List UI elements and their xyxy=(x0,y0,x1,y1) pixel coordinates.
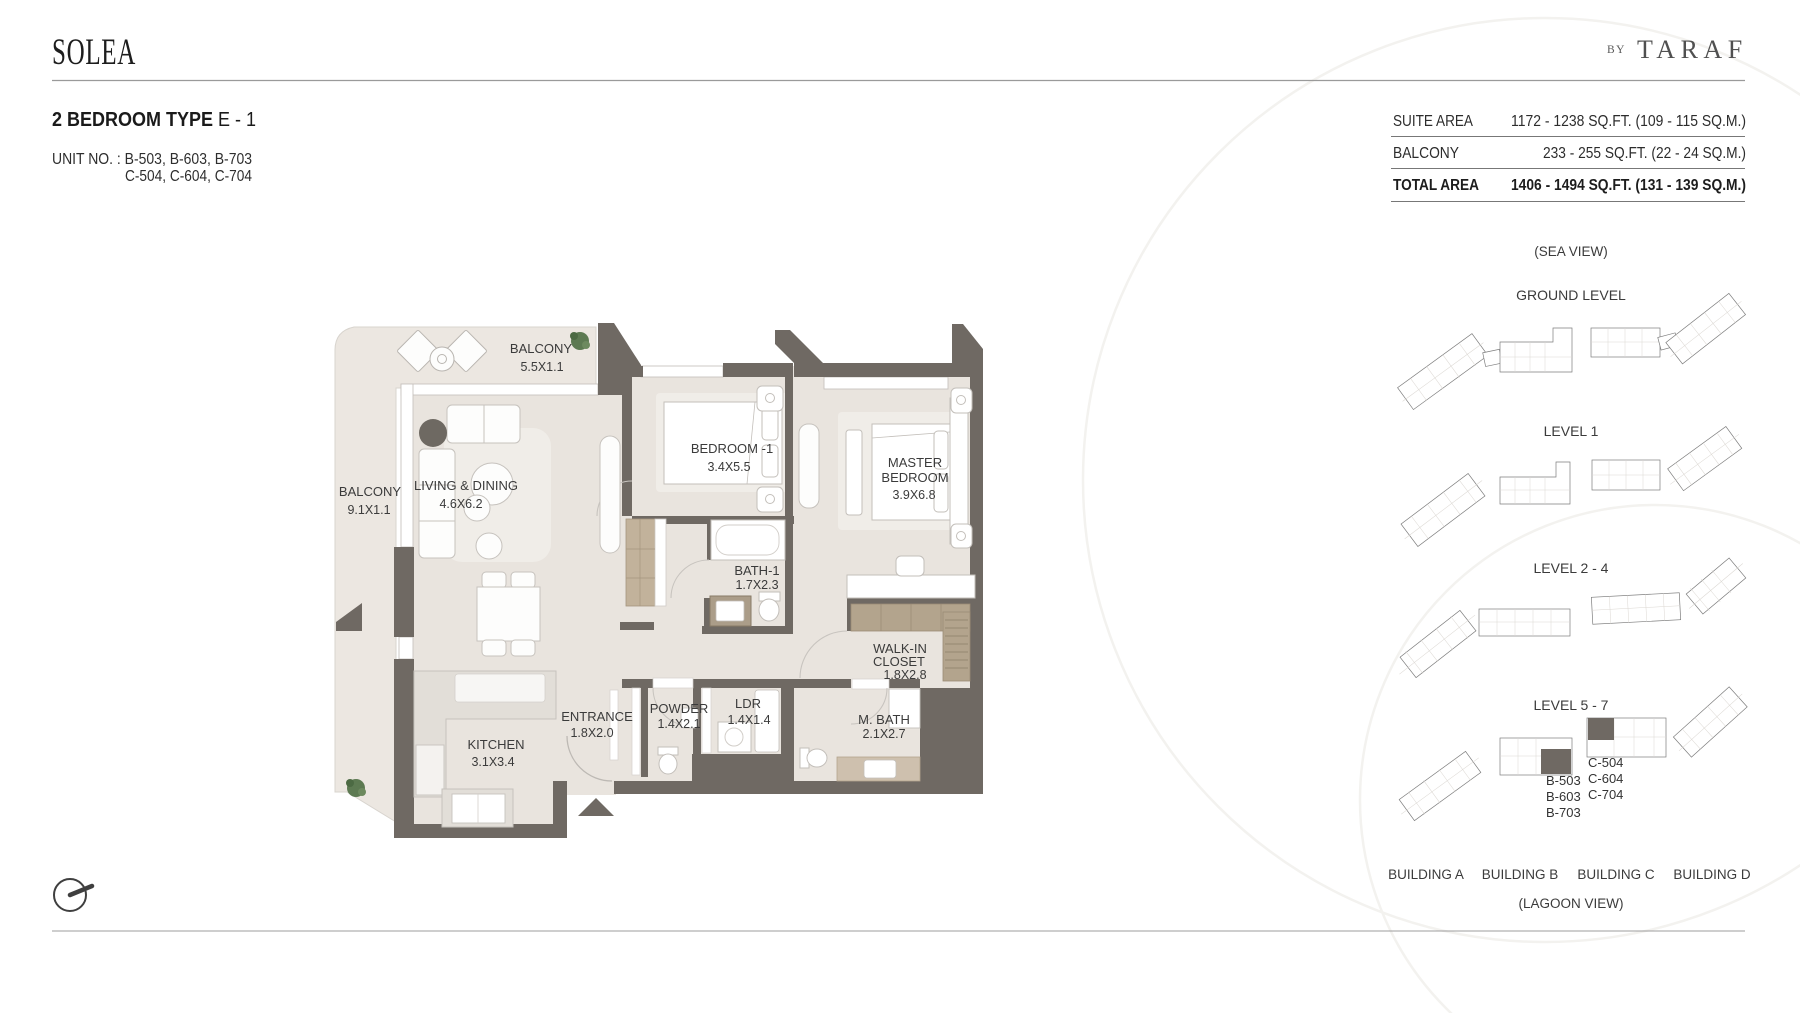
svg-text:CLOSET: CLOSET xyxy=(873,654,925,669)
svg-text:BALCONY: BALCONY xyxy=(339,484,401,499)
svg-text:2.1X2.7: 2.1X2.7 xyxy=(862,727,905,741)
svg-text:M. BATH: M. BATH xyxy=(858,712,910,727)
svg-text:C-704: C-704 xyxy=(1588,787,1623,802)
svg-text:4.6X6.2: 4.6X6.2 xyxy=(439,497,482,511)
svg-text:BALCONY: BALCONY xyxy=(510,341,572,356)
svg-text:LIVING & DINING: LIVING & DINING xyxy=(414,478,518,493)
svg-text:3.9X6.8: 3.9X6.8 xyxy=(892,488,935,502)
svg-text:SOLEA: SOLEA xyxy=(52,32,136,73)
svg-text:ENTRANCE: ENTRANCE xyxy=(561,709,633,724)
svg-text:5.5X1.1: 5.5X1.1 xyxy=(520,360,563,374)
svg-text:1172 - 1238 SQ.FT. (109 - 115: 1172 - 1238 SQ.FT. (109 - 115 SQ.M.) xyxy=(1511,113,1746,130)
svg-text:LDR: LDR xyxy=(735,696,761,711)
svg-text:C-604: C-604 xyxy=(1588,771,1623,786)
svg-text:SUITE AREA: SUITE AREA xyxy=(1393,113,1474,130)
svg-text:BY: BY xyxy=(1607,44,1626,56)
svg-text:LEVEL 1: LEVEL 1 xyxy=(1544,423,1599,439)
svg-text:BUILDING A: BUILDING A xyxy=(1388,867,1464,882)
svg-text:LEVEL 5 - 7: LEVEL 5 - 7 xyxy=(1534,697,1609,713)
svg-text:BALCONY: BALCONY xyxy=(1393,145,1459,162)
svg-text:3.4X5.5: 3.4X5.5 xyxy=(707,460,750,474)
svg-text:TOTAL AREA: TOTAL AREA xyxy=(1393,177,1479,194)
svg-text:BEDROOM: BEDROOM xyxy=(881,470,948,485)
svg-text:BUILDING B: BUILDING B xyxy=(1482,867,1559,882)
svg-text:UNIT NO. : B-503, B-603, B-703: UNIT NO. : B-503, B-603, B-703 xyxy=(52,151,252,168)
svg-text:1.4X1.4: 1.4X1.4 xyxy=(727,713,770,727)
svg-text:KITCHEN: KITCHEN xyxy=(467,737,524,752)
svg-text:B-603: B-603 xyxy=(1546,789,1581,804)
svg-text:TARAF: TARAF xyxy=(1637,35,1748,64)
svg-text:(LAGOON VIEW): (LAGOON VIEW) xyxy=(1518,896,1623,911)
svg-text:LEVEL 2 - 4: LEVEL 2 - 4 xyxy=(1534,560,1609,576)
svg-text:3.1X3.4: 3.1X3.4 xyxy=(471,755,514,769)
svg-text:C-504: C-504 xyxy=(1588,755,1623,770)
svg-text:GROUND LEVEL: GROUND LEVEL xyxy=(1516,287,1626,303)
svg-text:1.8X2.0: 1.8X2.0 xyxy=(570,726,613,740)
svg-text:233 - 255 SQ.FT. (22 - 24 SQ.M: 233 - 255 SQ.FT. (22 - 24 SQ.M.) xyxy=(1543,145,1746,162)
svg-text:1406 - 1494 SQ.FT. (131 - 139: 1406 - 1494 SQ.FT. (131 - 139 SQ.M.) xyxy=(1511,177,1746,194)
svg-text:BUILDING D: BUILDING D xyxy=(1673,867,1751,882)
svg-text:9.1X1.1: 9.1X1.1 xyxy=(347,503,390,517)
svg-text:1.4X2.1: 1.4X2.1 xyxy=(657,717,700,731)
svg-text:C-504, C-604, C-704: C-504, C-604, C-704 xyxy=(125,168,252,185)
svg-text:1.7X2.3: 1.7X2.3 xyxy=(735,578,778,592)
svg-text:BATH-1: BATH-1 xyxy=(734,563,779,578)
svg-text:1.8X2.8: 1.8X2.8 xyxy=(883,668,926,682)
svg-text:POWDER: POWDER xyxy=(650,701,709,716)
svg-text:2 BEDROOM TYPE E - 1: 2 BEDROOM TYPE E - 1 xyxy=(52,109,256,131)
svg-text:BUILDING C: BUILDING C xyxy=(1577,867,1655,882)
svg-text:(SEA VIEW): (SEA VIEW) xyxy=(1534,244,1608,259)
svg-text:BEDROOM -1: BEDROOM -1 xyxy=(691,441,773,456)
svg-text:MASTER: MASTER xyxy=(888,455,942,470)
svg-text:B-503: B-503 xyxy=(1546,773,1581,788)
svg-text:B-703: B-703 xyxy=(1546,805,1581,820)
